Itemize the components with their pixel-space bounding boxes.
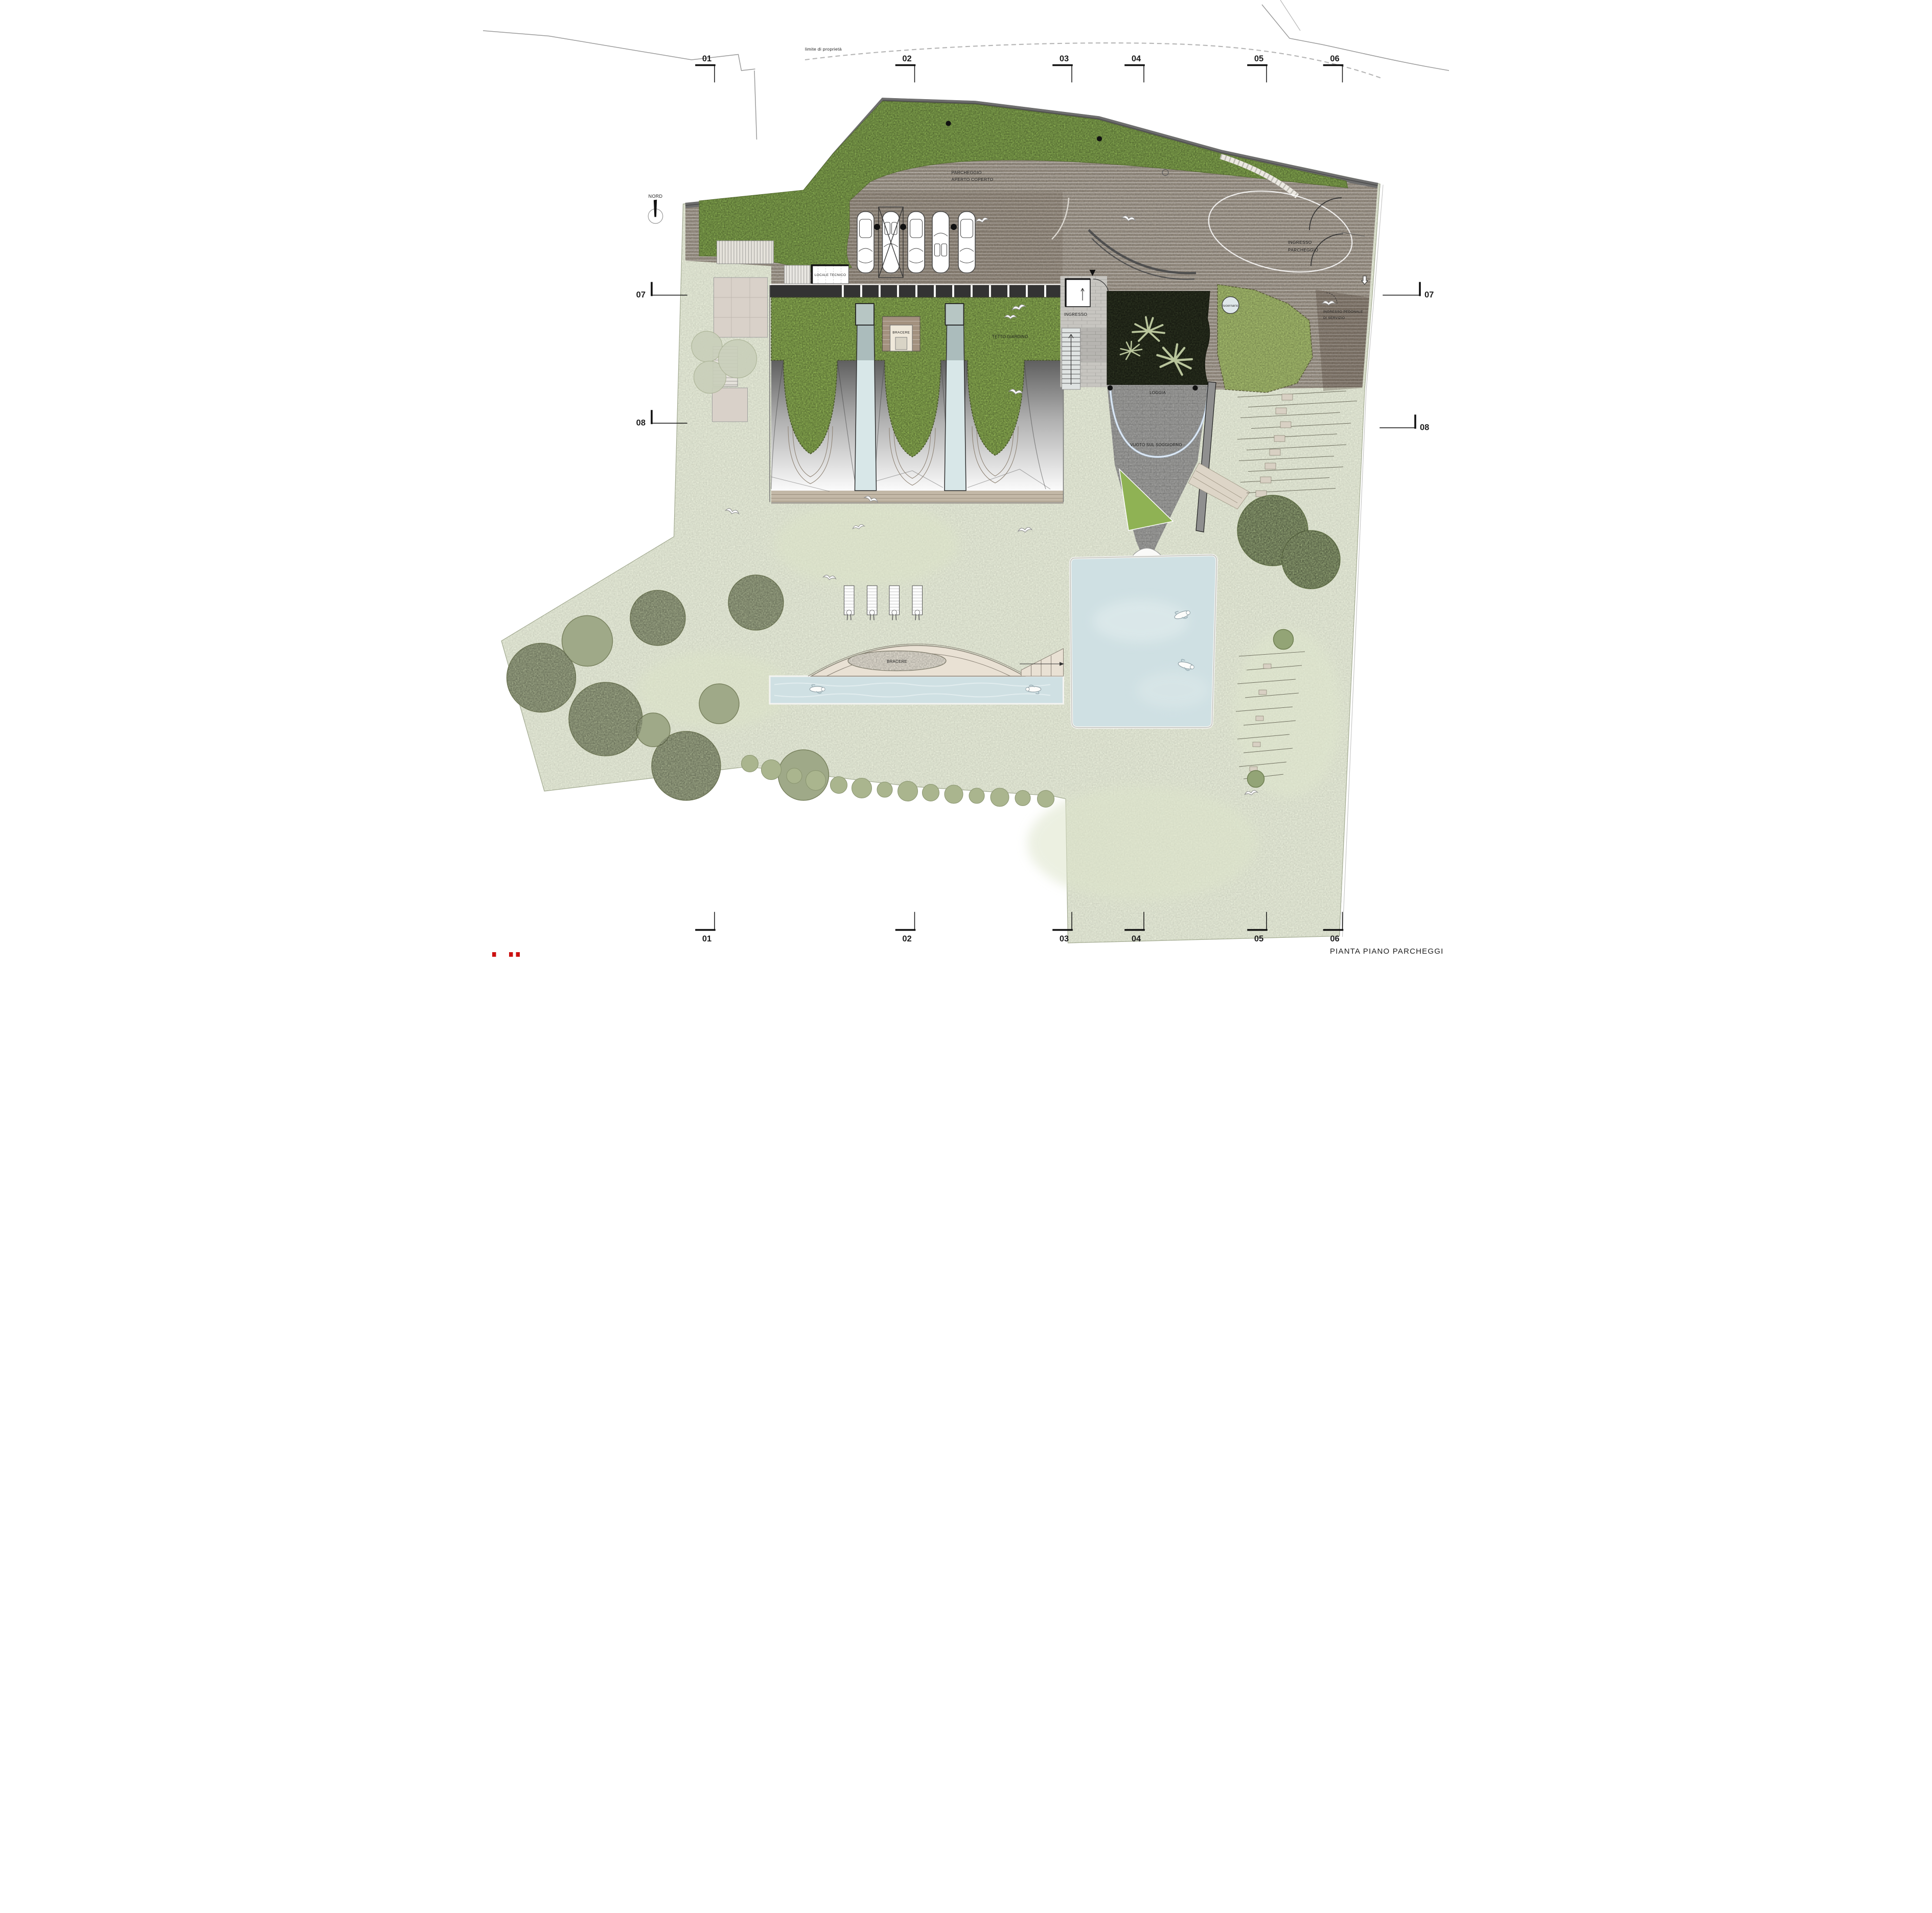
ingresso-label: INGRESSO bbox=[1064, 312, 1087, 317]
palm-courtyard bbox=[1107, 291, 1210, 385]
sun-lounger bbox=[867, 586, 878, 620]
bracere-roof-platform: BRACERE bbox=[883, 317, 921, 352]
water-channel bbox=[945, 304, 966, 491]
svg-text:08: 08 bbox=[636, 419, 646, 428]
car bbox=[958, 212, 975, 273]
building-roof: BRACERE TETTO GIARDINO bbox=[770, 285, 1064, 504]
north-compass: NORD bbox=[648, 194, 663, 223]
svg-text:02: 02 bbox=[902, 934, 911, 943]
ingresso-pedonale-label-2: DI SERVIZIO bbox=[1323, 316, 1345, 320]
ingresso-pedonale-label-1: INGRESSO PEDONALE bbox=[1323, 310, 1363, 314]
svg-text:01: 01 bbox=[702, 54, 711, 63]
entry-zone: INGRESSO bbox=[1061, 270, 1109, 389]
svg-text:03: 03 bbox=[1060, 934, 1069, 943]
parcheggio-label-2: APERTO COPERTO bbox=[952, 177, 994, 182]
svg-text:06: 06 bbox=[1330, 54, 1339, 63]
steps-band bbox=[771, 491, 1064, 504]
svg-text:07: 07 bbox=[636, 290, 646, 299]
svg-text:04: 04 bbox=[1132, 54, 1141, 63]
water-channel bbox=[855, 304, 877, 491]
sun-lounger bbox=[844, 586, 855, 620]
svg-text:03: 03 bbox=[1060, 54, 1069, 63]
svg-text:01: 01 bbox=[702, 934, 711, 943]
parcheggio-label-1: PARCHEGGIO bbox=[952, 170, 982, 175]
ingresso-parcheggio-label-1: INGRESSO bbox=[1288, 240, 1312, 245]
svg-text:05: 05 bbox=[1254, 54, 1263, 63]
stone-terrace bbox=[712, 388, 748, 422]
svg-text:08: 08 bbox=[1420, 423, 1429, 432]
loggia-label: LOGGIA bbox=[1149, 390, 1166, 395]
locale-tecnico-label: LOCALE TECNICO bbox=[815, 273, 846, 277]
svg-text:05: 05 bbox=[1254, 934, 1263, 943]
grid-marker-right: 07 08 bbox=[1380, 283, 1434, 432]
boundary-label: limite di proprietà bbox=[805, 47, 842, 52]
sun-lounger bbox=[889, 586, 900, 620]
lucernario-label: lucernario bbox=[1223, 304, 1238, 308]
red-corner-marks bbox=[492, 952, 520, 957]
tree-dot bbox=[1097, 136, 1102, 141]
svg-text:04: 04 bbox=[1132, 934, 1141, 943]
column-dot bbox=[1192, 385, 1198, 390]
site-plan-page: limite di proprietà PARCHEGGIO APERTO CO… bbox=[483, 0, 1449, 957]
stone-terrace bbox=[714, 278, 768, 337]
column-dot bbox=[1108, 385, 1113, 390]
compass-needle bbox=[654, 200, 657, 217]
svg-text:02: 02 bbox=[902, 54, 911, 63]
tree-dot bbox=[946, 121, 951, 126]
bracere-garden-label: BRACERE bbox=[887, 659, 907, 664]
grid-marker-top: 01 02 03 04 05 06 bbox=[696, 54, 1343, 82]
limite-di-proprieta-line bbox=[805, 43, 1382, 78]
tetto-giardino-label: TETTO GIARDINO bbox=[992, 335, 1028, 339]
sun-lounger bbox=[912, 586, 923, 620]
car bbox=[857, 212, 874, 273]
svg-text:06: 06 bbox=[1330, 934, 1339, 943]
car-convertible bbox=[932, 212, 949, 273]
north-label: NORD bbox=[649, 194, 663, 199]
ingresso-parcheggio-label-2: PARCHEGGIO bbox=[1288, 247, 1318, 252]
site-plan-drawing: limite di proprietà PARCHEGGIO APERTO CO… bbox=[483, 0, 1449, 957]
svg-text:07: 07 bbox=[1424, 290, 1434, 299]
entry-room bbox=[1066, 279, 1090, 307]
car bbox=[908, 212, 925, 273]
vuoto-label: VUOTO SUL SOGGIORNO bbox=[1130, 443, 1182, 447]
bracere-roof-label: BRACERE bbox=[892, 331, 910, 335]
drawing-title: PIANTA PIANO PARCHEGGI bbox=[1330, 947, 1444, 956]
